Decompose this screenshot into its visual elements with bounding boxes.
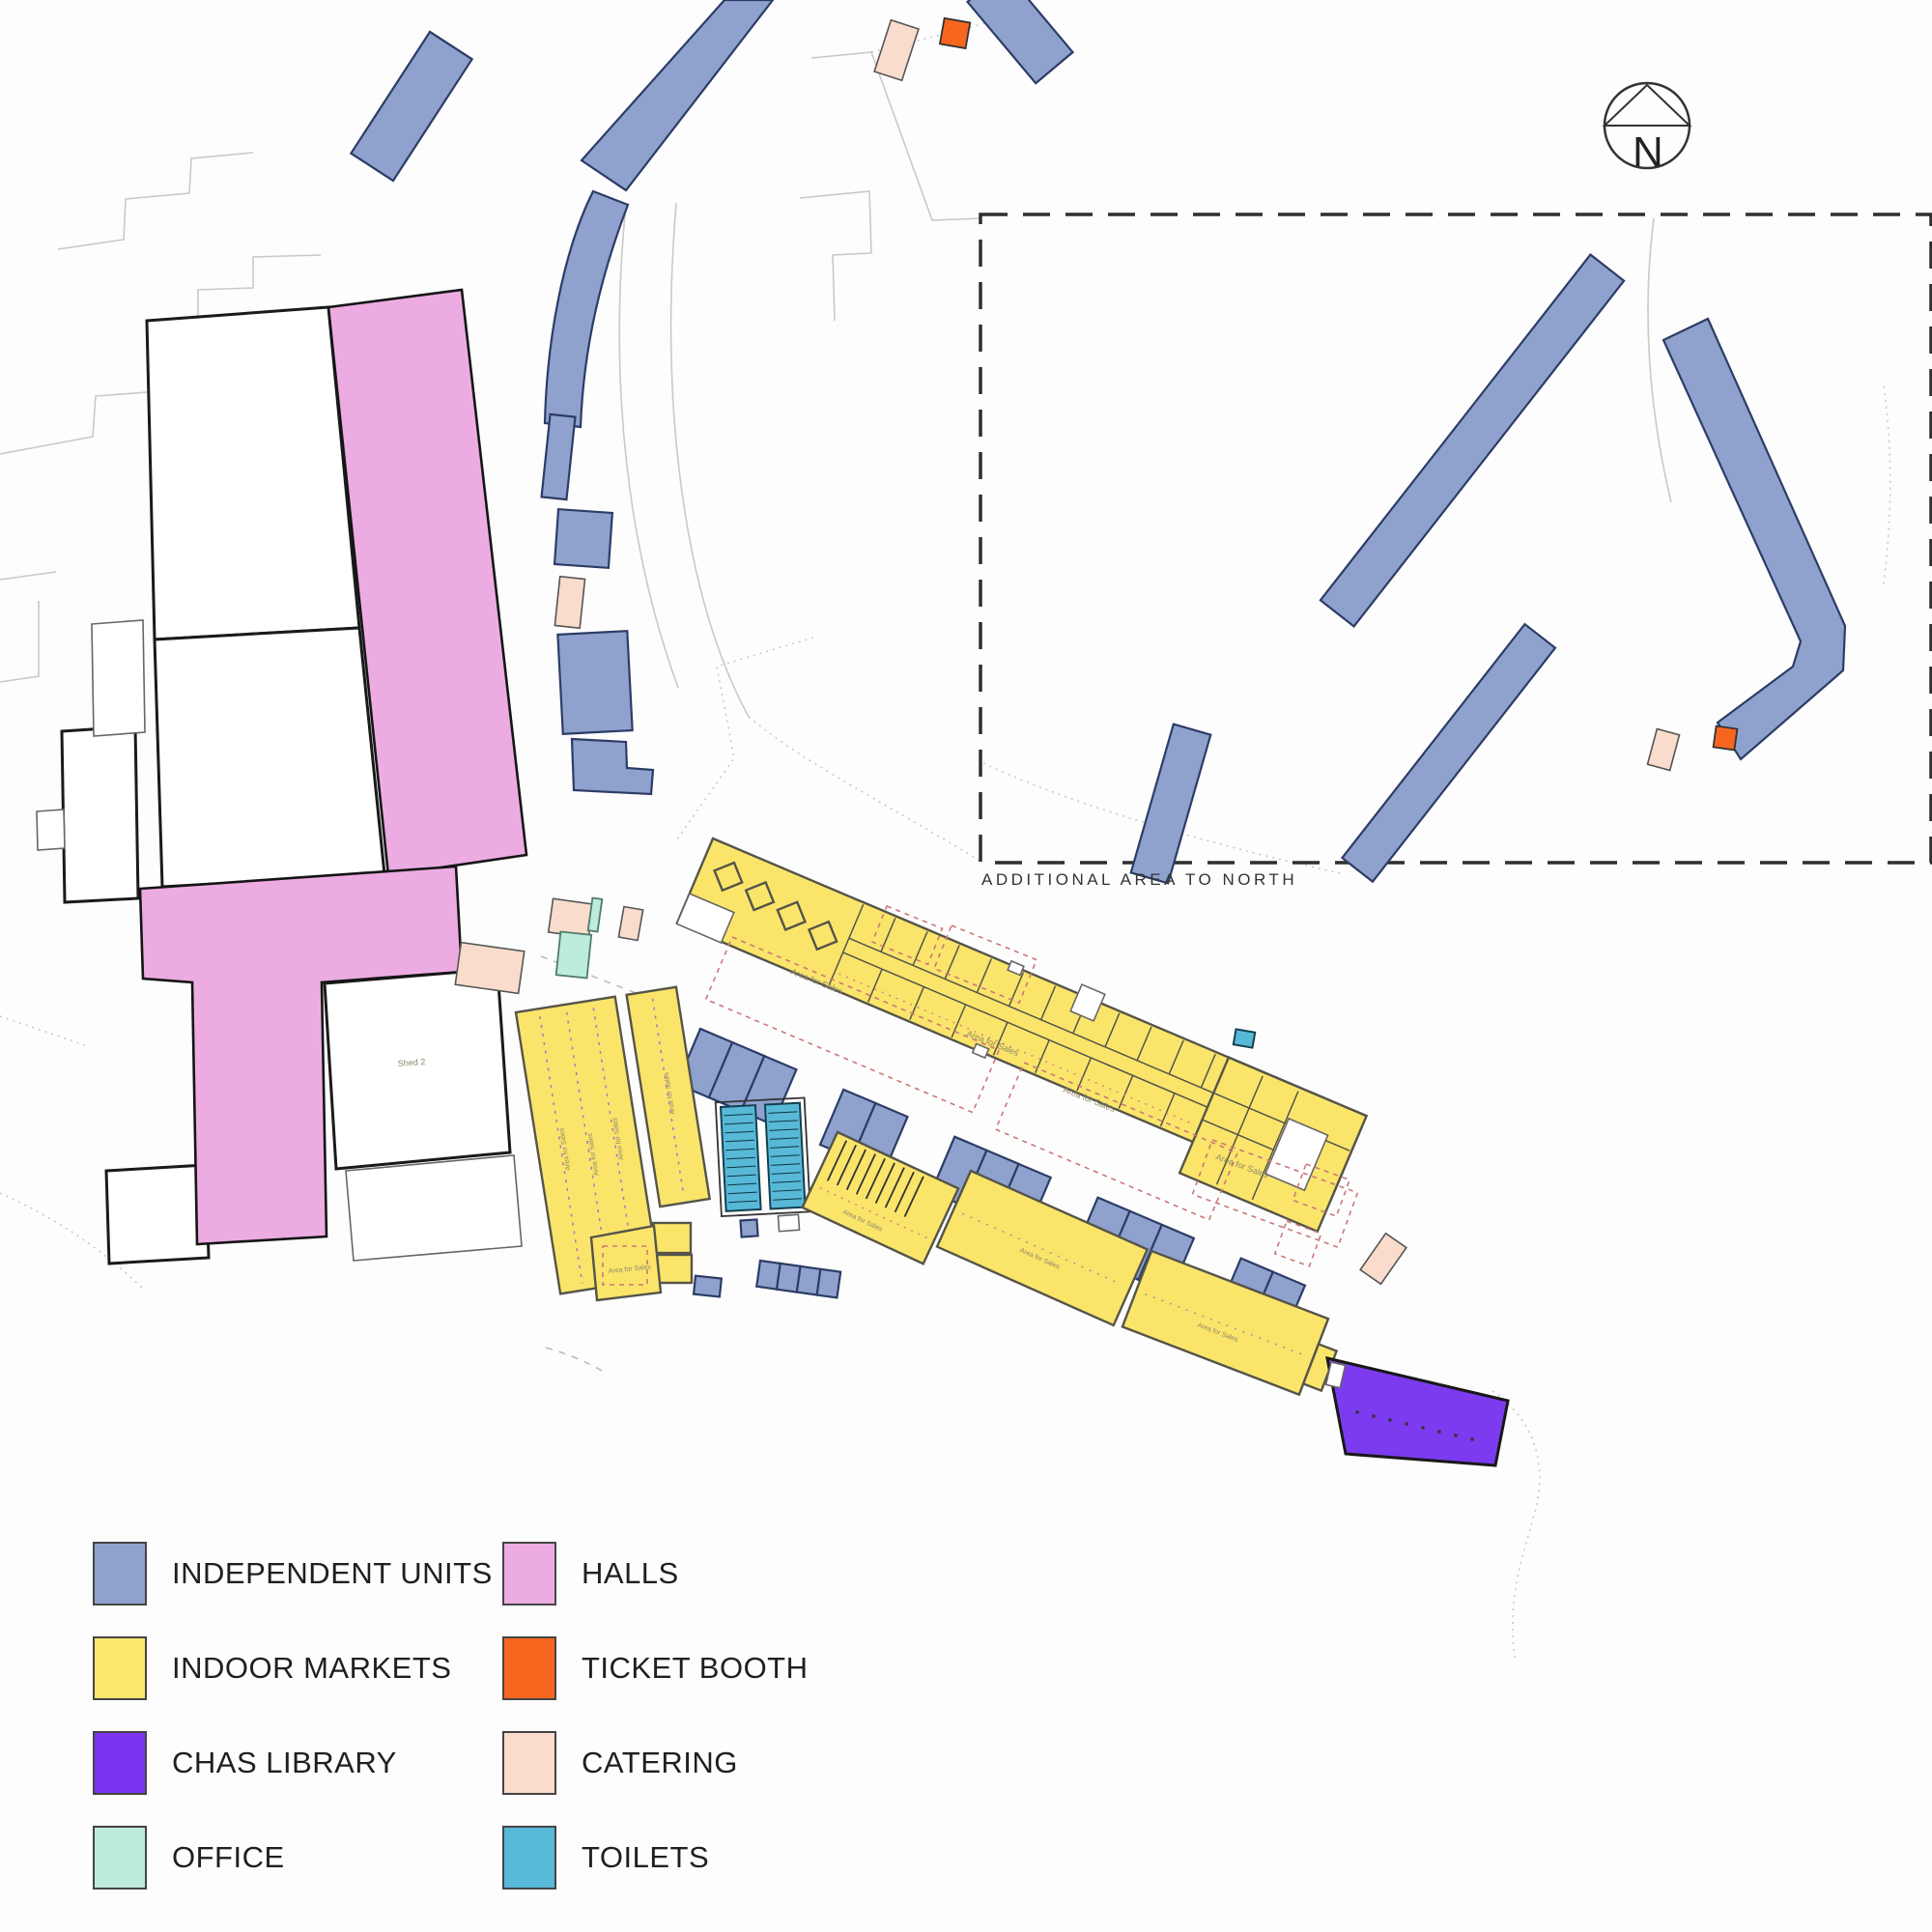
site-plan-page: Shed 2 ADDITIONAL AREA TO NORTH [0, 0, 1932, 1932]
office-building [556, 931, 592, 978]
building-white-annex [62, 726, 138, 902]
legend-item-toilets: TOILETS [502, 1826, 709, 1889]
compass: N [1605, 83, 1690, 176]
legend-item-halls: HALLS [502, 1542, 679, 1605]
unit-bar-top-right [967, 0, 1072, 83]
building-white-lower [155, 628, 384, 887]
legend-swatch-catering [502, 1731, 556, 1795]
building-shed-annex [346, 1155, 522, 1261]
unit-rect-c [557, 631, 632, 734]
legend-swatch-halls [502, 1542, 556, 1605]
legend-swatch-office [93, 1826, 147, 1889]
building-shed [325, 969, 510, 1169]
library-dot [1421, 1426, 1425, 1430]
legend-label: INDEPENDENT UNITS [172, 1556, 493, 1591]
legend-item-chas-library: CHAS LIBRARY [93, 1731, 397, 1795]
library-dot [1437, 1430, 1441, 1434]
library-dot [1372, 1414, 1376, 1418]
unit-bar-top-left [351, 32, 471, 181]
legend-item-office: OFFICE [93, 1826, 285, 1889]
market-lower-comb [803, 1132, 958, 1264]
legend-swatch-indoor-markets [93, 1636, 147, 1700]
legend-label: TOILETS [582, 1840, 709, 1875]
catering-bar-mid [618, 907, 642, 941]
legend-label: HALLS [582, 1556, 679, 1591]
legend-label: CATERING [582, 1746, 738, 1780]
stall-row-lower [756, 1261, 840, 1297]
ticket-booth-top [940, 18, 970, 48]
legend-swatch-chas-library [93, 1731, 147, 1795]
legend-item-indoor-markets: INDOOR MARKETS [93, 1636, 451, 1700]
catering-top [874, 20, 919, 81]
unit-band-lower [545, 191, 628, 427]
shed-label: Shed 2 [397, 1057, 425, 1068]
catering-north [1647, 729, 1679, 771]
legend-item-catering: CATERING [502, 1731, 738, 1795]
indoor-market-lower-hall: Area for Sales Area for Sales Area for S… [803, 1132, 1508, 1465]
unit-bar-north-elbow [1663, 319, 1845, 759]
market-lower-right [1122, 1251, 1328, 1395]
library-dot [1405, 1422, 1408, 1426]
unit-bar-north-mid [1342, 624, 1555, 882]
building-white-bottom-left [106, 1165, 209, 1264]
library-dot [1454, 1434, 1458, 1437]
ticket-booth-north [1714, 726, 1738, 751]
building-white-upper [147, 307, 359, 639]
unit-rect-b [554, 509, 612, 568]
toilet-small-square [1234, 1029, 1255, 1047]
legend-swatch-independent-units [93, 1542, 147, 1605]
library-dot [1355, 1410, 1359, 1414]
compass-north-label: N [1633, 128, 1663, 176]
unit-bar-north-small [1131, 724, 1211, 884]
legend-item-independent-units: INDEPENDENT UNITS [93, 1542, 493, 1605]
catering-west [554, 577, 584, 628]
building-white-annex-notch [37, 810, 65, 850]
additional-area-label: ADDITIONAL AREA TO NORTH [981, 870, 1297, 889]
independent-unit-stall [740, 1219, 757, 1236]
library-dot [1470, 1437, 1474, 1441]
chas-library-building [1327, 1358, 1508, 1465]
indoor-market-left: Area for Sales Area for Sales Area for S… [516, 987, 721, 1300]
independent-unit-stall [694, 1276, 722, 1297]
catering-by-halls [455, 943, 524, 994]
legend-label: OFFICE [172, 1840, 285, 1875]
office-sliver [588, 897, 603, 931]
legend-label: INDOOR MARKETS [172, 1651, 451, 1686]
legend-swatch-ticket-booth [502, 1636, 556, 1700]
top-centre-buildings [874, 0, 1072, 83]
additional-area-north: ADDITIONAL AREA TO NORTH [980, 214, 1931, 889]
legend-label: TICKET BOOTH [582, 1651, 809, 1686]
legend-item-ticket-booth: TICKET BOOTH [502, 1636, 809, 1700]
legend-swatch-toilets [502, 1826, 556, 1889]
unit-rect-a [542, 414, 576, 499]
library-dot [1388, 1418, 1392, 1422]
compass-needle [1605, 85, 1690, 126]
unit-l-shape [572, 739, 653, 794]
building-white-small-left [92, 620, 145, 736]
market-left-room [653, 1223, 691, 1253]
catering-office-cluster [455, 897, 642, 993]
catering-southeast [1360, 1234, 1406, 1285]
independent-unit-stall [817, 1269, 841, 1298]
legend-label: CHAS LIBRARY [172, 1746, 397, 1780]
unit-band-upper [582, 0, 773, 190]
white-stall-outline [778, 1214, 799, 1231]
unit-bar-north-long [1321, 255, 1624, 627]
